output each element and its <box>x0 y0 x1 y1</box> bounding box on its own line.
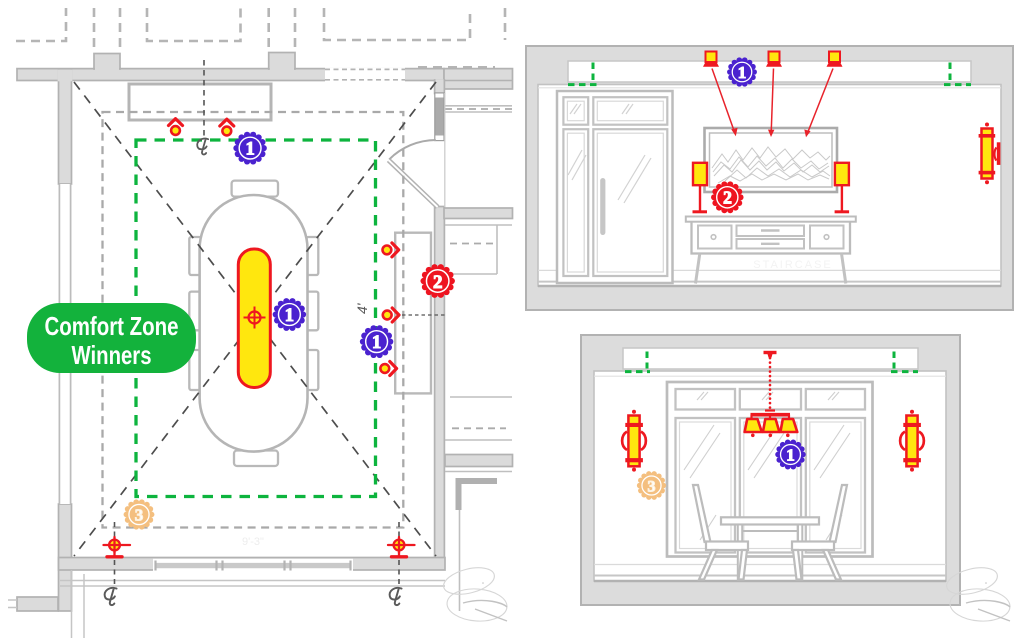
svg-text:1: 1 <box>285 306 294 326</box>
svg-text:3: 3 <box>648 478 656 495</box>
svg-text:4': 4' <box>354 302 370 314</box>
svg-text:3: 3 <box>135 506 144 525</box>
svg-text:1: 1 <box>245 140 254 160</box>
svg-text:1: 1 <box>372 333 381 353</box>
svg-text:STAIRCASE: STAIRCASE <box>753 259 833 271</box>
svg-text:9'-3": 9'-3" <box>242 536 264 548</box>
svg-text:1: 1 <box>786 446 795 465</box>
svg-text:Comfort Zone: Comfort Zone <box>45 311 179 341</box>
svg-text:Winners: Winners <box>72 340 152 370</box>
svg-text:2: 2 <box>723 187 732 207</box>
svg-text:2: 2 <box>433 272 443 293</box>
svg-text:1: 1 <box>738 63 747 82</box>
